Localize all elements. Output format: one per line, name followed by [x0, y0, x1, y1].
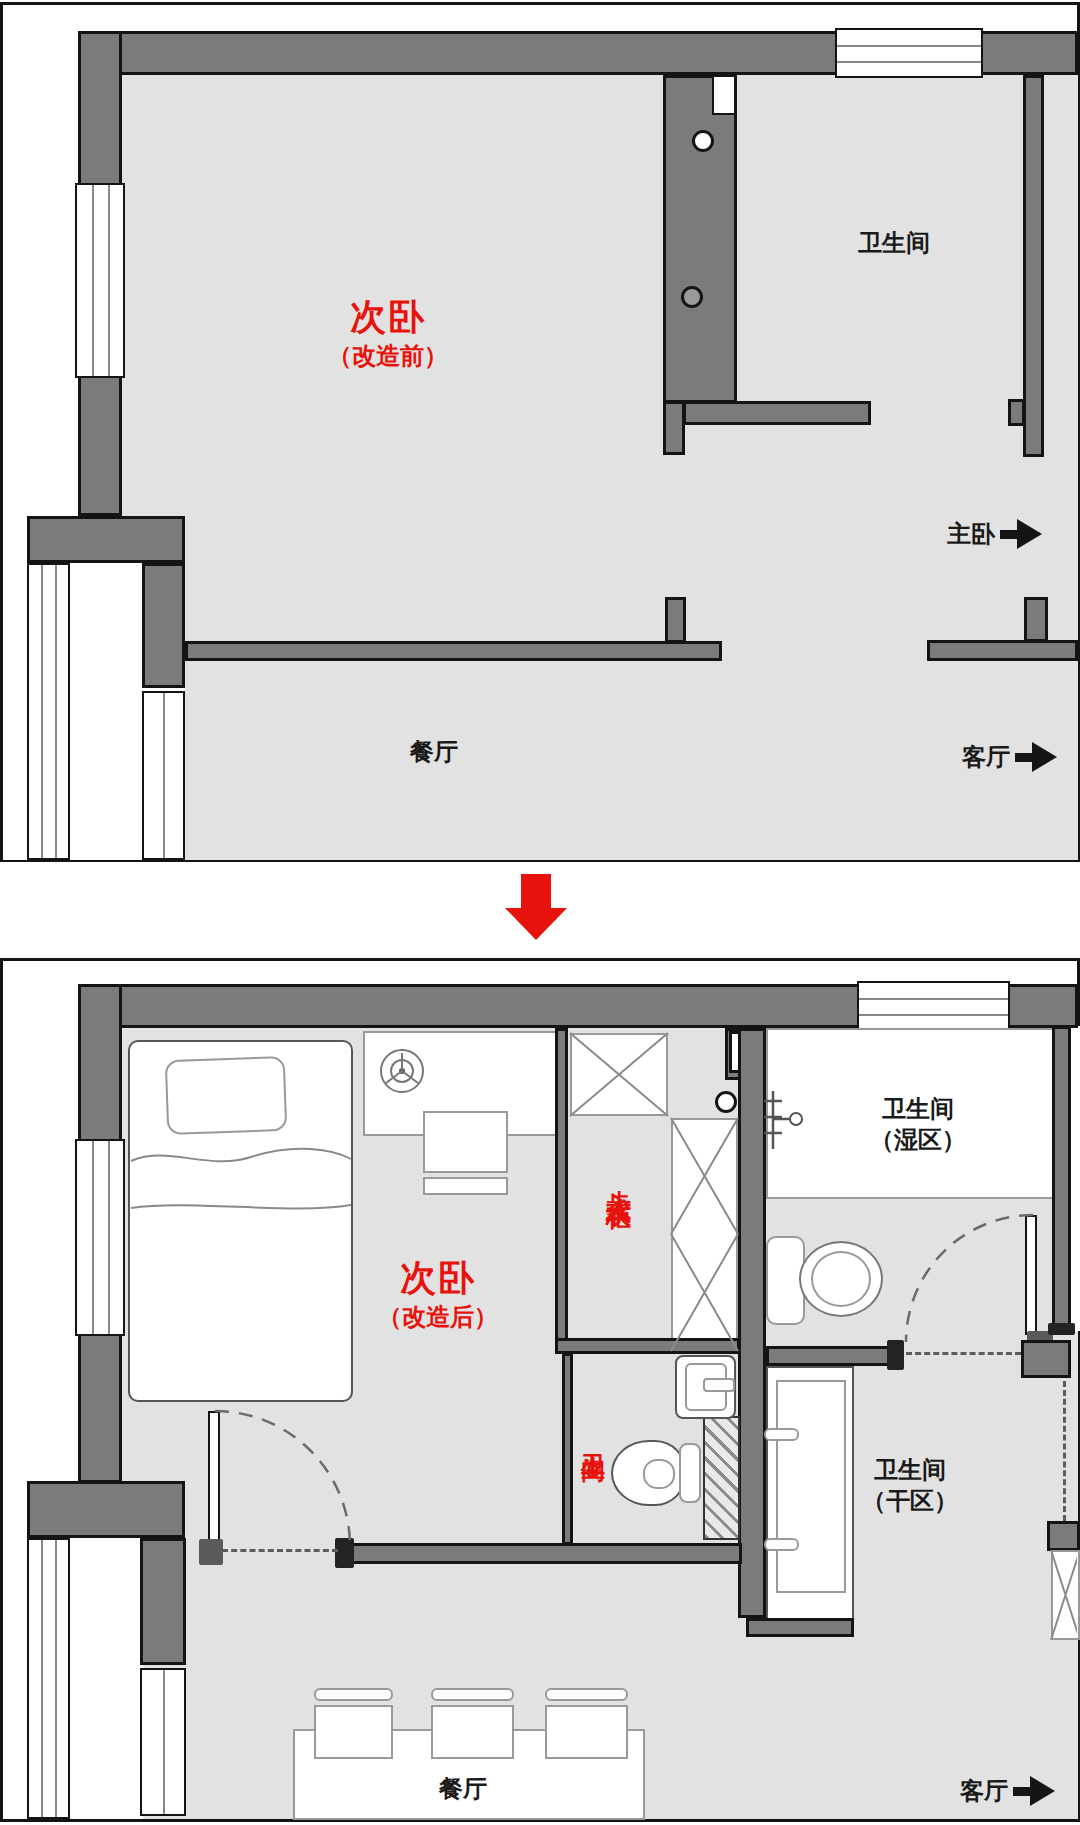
wall-lower-right — [927, 640, 1078, 661]
wall-bedroom-south — [341, 1543, 742, 1564]
niche — [712, 75, 736, 115]
chair-seat-2 — [431, 1705, 514, 1759]
wet-bathroom-line2: （湿区） — [818, 1124, 1018, 1155]
door-leaf-wet — [1025, 1215, 1037, 1335]
chair-back-3 — [545, 1688, 628, 1701]
living-room-arrow-after: 客厅 — [960, 1775, 1055, 1807]
wall-bathroom-south — [683, 401, 871, 425]
room-subtitle-before: （改造前） — [288, 340, 488, 372]
pipe-shaft-hatch — [703, 1416, 740, 1540]
balcony-area-after — [3, 1538, 143, 1819]
wall-toilet-north — [555, 1338, 740, 1354]
wall-block-east — [1021, 1340, 1071, 1378]
dry-bathroom-line2: （干区） — [810, 1485, 1010, 1516]
right-arrow-icon — [1017, 519, 1042, 549]
floor-bedroom-before — [122, 75, 1078, 643]
door-hinge-bedroom — [199, 1539, 223, 1565]
pillow — [165, 1056, 288, 1135]
living-label-after: 客厅 — [960, 1775, 1008, 1807]
drain-icon — [681, 286, 703, 308]
window-balcony-outer — [27, 1538, 70, 1819]
wall-lower-left — [142, 563, 185, 688]
toilet-flush-small — [643, 1459, 675, 1489]
corner-cabinet — [1051, 1550, 1080, 1640]
arrow-bar — [1013, 1787, 1030, 1796]
window-top — [857, 981, 1010, 1031]
vanity-tap-1 — [764, 1428, 799, 1441]
small-bathroom-label: 卫生间 — [577, 1434, 609, 1440]
wall-plumbing — [738, 1028, 766, 1618]
pipe-icon — [715, 1091, 737, 1113]
door-jamb-wet — [887, 1340, 904, 1370]
wet-bathroom-label: 卫生间 （湿区） — [818, 1093, 1018, 1155]
chair-seat-1 — [314, 1705, 393, 1759]
wall-finger — [663, 401, 685, 455]
toilet-tank-small — [679, 1443, 701, 1503]
dry-bathroom-line1: 卫生间 — [810, 1454, 1010, 1485]
toilet-seat-wet — [811, 1251, 871, 1307]
fan-icon — [380, 1049, 424, 1093]
wall-right — [1023, 75, 1044, 457]
washbasin-tap — [703, 1378, 735, 1392]
wall-right-cap — [1048, 1323, 1075, 1335]
window-left — [75, 183, 125, 378]
door-opening-dash-bedroom — [222, 1549, 338, 1552]
wall-lower-left — [140, 1538, 186, 1665]
wall-pier-left — [27, 516, 185, 563]
door-leaf-bedroom — [208, 1411, 220, 1543]
wall-right-low — [1047, 1521, 1080, 1551]
wet-bathroom-line1: 卫生间 — [818, 1093, 1018, 1124]
door-jamb-dining — [665, 597, 686, 643]
pipe-icon — [692, 130, 714, 152]
wall-wet-south — [766, 1346, 893, 1366]
window-lower-left — [140, 1668, 186, 1816]
bathroom-label-before: 卫生间 — [794, 227, 994, 259]
wall-toilet-west — [562, 1353, 573, 1545]
room-title-before: 次卧 — [288, 293, 488, 342]
master-label: 主卧 — [947, 518, 995, 550]
right-arrow-icon — [1030, 1776, 1055, 1806]
closet-cabinet-column — [671, 1118, 738, 1351]
wall-vanity-south — [746, 1618, 854, 1637]
window-lower-left — [142, 691, 185, 860]
dining-label-before: 餐厅 — [334, 736, 534, 768]
chair-back — [423, 1177, 508, 1195]
chair-seat-3 — [545, 1705, 628, 1759]
room-subtitle-after: （改造后） — [338, 1301, 538, 1333]
plan-before: 次卧 （改造前） 卫生间 餐厅 主卧 客厅 — [0, 2, 1080, 862]
window-left — [75, 1139, 125, 1336]
living-label-before: 客厅 — [962, 741, 1010, 773]
window-top — [835, 28, 983, 78]
master-bedroom-arrow: 主卧 — [947, 518, 1042, 550]
chair — [423, 1111, 508, 1173]
wall-plumbing — [663, 75, 737, 403]
balcony-area-before — [3, 563, 143, 860]
chair-back-1 — [314, 1688, 393, 1701]
wall-dining-divider — [185, 641, 722, 661]
wall-pier-left — [27, 1481, 185, 1538]
closet-cabinet-top — [570, 1033, 668, 1116]
dining-label-after: 餐厅 — [363, 1773, 563, 1805]
arrow-bar — [1000, 530, 1017, 539]
before-after-floorplan: 次卧 （改造前） 卫生间 餐厅 主卧 客厅 — [0, 0, 1080, 1825]
door-jamb-right — [1024, 597, 1048, 642]
arrow-bar — [1015, 753, 1032, 762]
living-room-arrow-before: 客厅 — [962, 741, 1057, 773]
vanity-tap-2 — [764, 1538, 799, 1551]
wall-closet-left — [555, 1028, 568, 1353]
wall-right — [1052, 1026, 1071, 1326]
door-jamb-bedroom — [335, 1538, 354, 1568]
dry-bathroom-label: 卫生间 （干区） — [810, 1454, 1010, 1516]
door-swing-dash-right — [1063, 1381, 1066, 1521]
right-arrow-icon — [1032, 742, 1057, 772]
chair-back-2 — [431, 1688, 514, 1701]
floor-dining-before — [185, 641, 1078, 860]
plan-after: 次卧 （改造后） 步入式衣柜 卫生间 （湿区） 卫生间 卫生间 （干区） 餐厅 … — [0, 958, 1080, 1822]
window-balcony-outer — [27, 563, 70, 860]
closet-label: 步入式衣柜 — [603, 1169, 636, 1189]
door-opening-dash-wet — [906, 1352, 1021, 1355]
room-title-after: 次卧 — [338, 1254, 538, 1303]
